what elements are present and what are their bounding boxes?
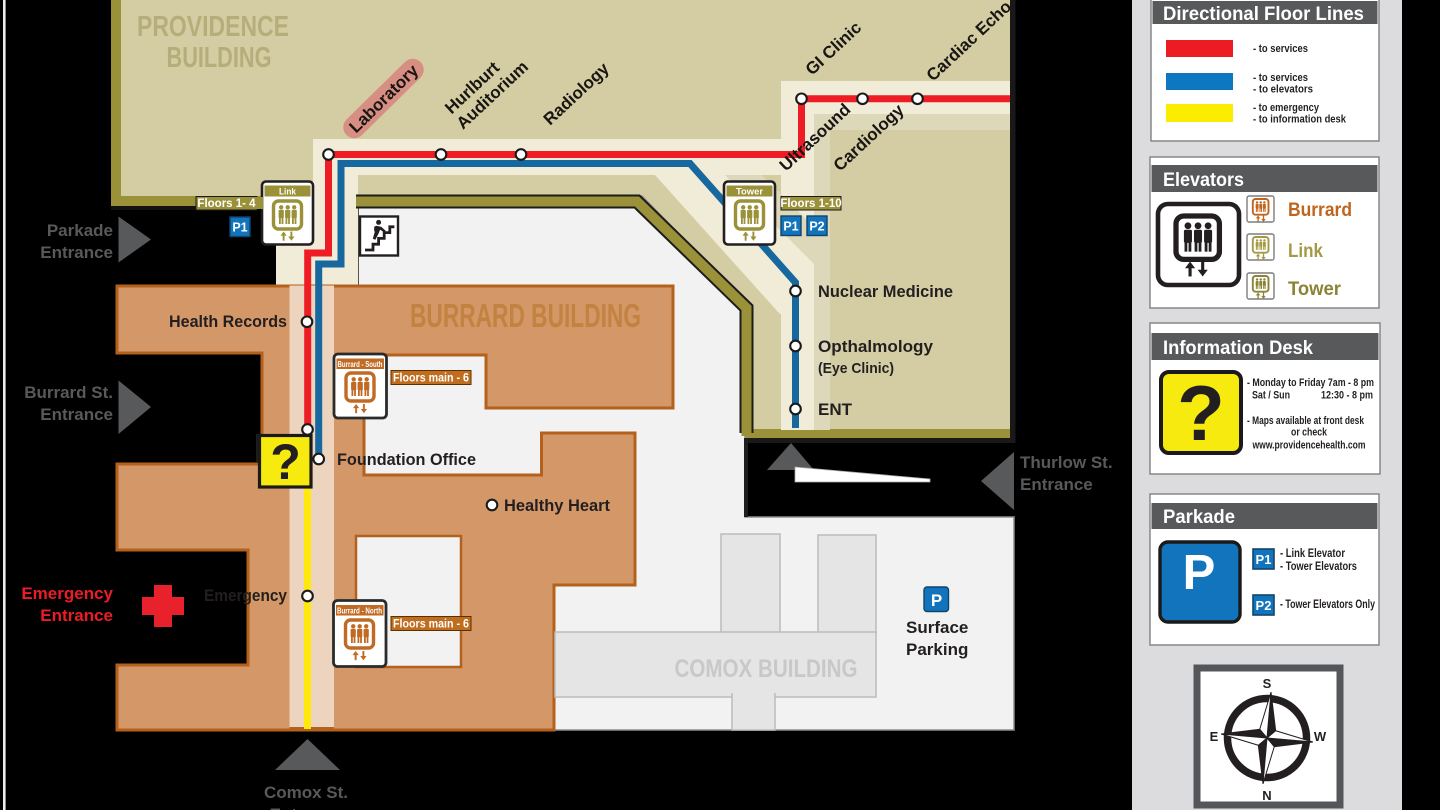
svg-text:Parking: Parking <box>906 640 968 659</box>
svg-text:Surface: Surface <box>906 618 968 637</box>
svg-text:Healthy Heart: Healthy Heart <box>504 496 610 515</box>
svg-text:P1: P1 <box>783 220 798 234</box>
svg-text:BUILDING: BUILDING <box>167 42 272 74</box>
svg-text:Parkade: Parkade <box>47 221 113 240</box>
svg-text:Sat / Sun: Sat / Sun <box>1252 390 1290 402</box>
svg-text:P1: P1 <box>1256 552 1272 567</box>
svg-text:E: E <box>1210 729 1219 744</box>
svg-text:(Eye Clinic): (Eye Clinic) <box>818 360 894 377</box>
svg-text:P1: P1 <box>232 221 247 235</box>
svg-text:Emergency: Emergency <box>21 584 113 603</box>
svg-text:PROVIDENCE: PROVIDENCE <box>137 11 289 43</box>
svg-text:Entrance: Entrance <box>1020 475 1093 494</box>
svg-text:- Tower Elevators: - Tower Elevators <box>1280 561 1357 573</box>
svg-text:Link: Link <box>279 187 297 197</box>
svg-text:Entrance: Entrance <box>40 405 113 424</box>
svg-text:Emergency: Emergency <box>204 586 287 605</box>
svg-text:Tower: Tower <box>736 187 764 197</box>
svg-text:BURRARD BUILDING: BURRARD BUILDING <box>410 297 641 334</box>
svg-text:Entrance: Entrance <box>40 243 113 262</box>
svg-text:N: N <box>1262 788 1271 803</box>
svg-text:ENT: ENT <box>818 400 853 419</box>
svg-text:Floors 1-10: Floors 1-10 <box>780 198 841 210</box>
svg-text:?: ? <box>270 434 301 490</box>
svg-text:COMOX BUILDING: COMOX BUILDING <box>675 655 858 683</box>
svg-text:Burrard St.: Burrard St. <box>24 383 113 402</box>
svg-text:S: S <box>1263 676 1272 691</box>
svg-text:Tower: Tower <box>1288 279 1342 300</box>
svg-text:or check: or check <box>1291 427 1328 439</box>
svg-text:- Link Elevator: - Link Elevator <box>1280 548 1345 560</box>
svg-text:Burrard - North: Burrard - North <box>337 606 382 615</box>
svg-text:P2: P2 <box>1256 598 1272 613</box>
svg-text:Health Records: Health Records <box>169 312 287 331</box>
svg-text:- to emergency: - to emergency <box>1253 102 1320 114</box>
svg-text:Parkade: Parkade <box>1163 506 1235 528</box>
svg-text:- to elevators: - to elevators <box>1253 84 1313 96</box>
svg-text:Directional Floor Lines: Directional Floor Lines <box>1163 3 1364 25</box>
svg-text:Entrance: Entrance <box>40 606 113 625</box>
svg-text:Entrance: Entrance <box>270 805 343 810</box>
svg-text:12:30 - 8 pm: 12:30 - 8 pm <box>1321 390 1373 402</box>
svg-text:Opthalmology: Opthalmology <box>818 337 934 356</box>
svg-text:Floors main - 6: Floors main - 6 <box>393 371 469 385</box>
svg-text:www.providencehealth.com: www.providencehealth.com <box>1252 440 1366 452</box>
svg-text:- to information desk: - to information desk <box>1253 114 1347 126</box>
svg-text:Nuclear Medicine: Nuclear Medicine <box>818 282 953 301</box>
svg-text:Elevators: Elevators <box>1163 169 1244 191</box>
svg-text:?: ? <box>1177 369 1225 457</box>
svg-text:Foundation Office: Foundation Office <box>337 450 476 469</box>
svg-text:- to services: - to services <box>1253 43 1308 55</box>
svg-text:Thurlow St.: Thurlow St. <box>1020 453 1113 472</box>
svg-text:Floors 1- 4: Floors 1- 4 <box>197 198 256 210</box>
svg-text:W: W <box>1314 729 1327 744</box>
svg-text:Burrard: Burrard <box>1288 200 1352 221</box>
svg-text:- Monday to Friday 7am - 8 pm: - Monday to Friday 7am - 8 pm <box>1247 377 1374 389</box>
svg-text:P: P <box>931 591 942 610</box>
svg-text:Floors main - 6: Floors main - 6 <box>393 617 469 631</box>
svg-text:- to services: - to services <box>1253 72 1308 84</box>
svg-text:- Maps available at front desk: - Maps available at front desk <box>1247 415 1365 427</box>
svg-text:- Tower Elevators Only: - Tower Elevators Only <box>1280 599 1375 611</box>
svg-text:P: P <box>1183 546 1216 600</box>
svg-text:Comox St.: Comox St. <box>264 783 348 802</box>
svg-text:P2: P2 <box>809 220 824 234</box>
svg-text:Burrard - South: Burrard - South <box>338 360 383 369</box>
svg-text:Link: Link <box>1288 241 1323 262</box>
svg-text:Information Desk: Information Desk <box>1163 337 1313 359</box>
